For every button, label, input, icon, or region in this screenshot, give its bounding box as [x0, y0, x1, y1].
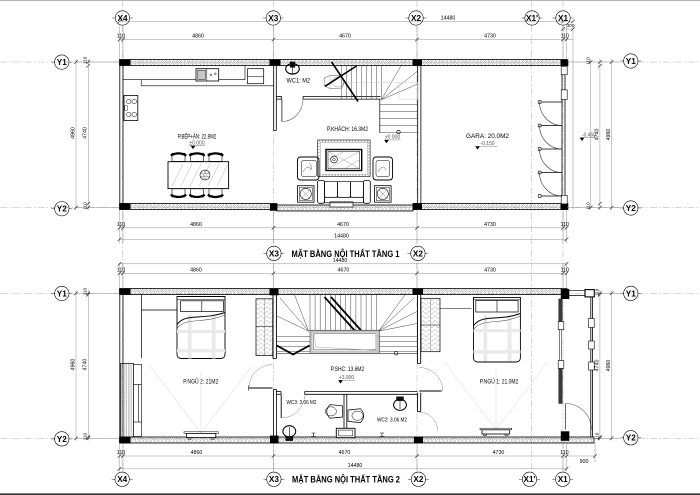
svg-text:WC1: M2: WC1: M2 — [287, 79, 311, 85]
svg-text:4670: 4670 — [338, 268, 350, 274]
svg-text:4960: 4960 — [606, 360, 612, 372]
svg-text:110: 110 — [561, 222, 569, 228]
svg-text:110: 110 — [117, 450, 125, 456]
svg-text:±0.000: ±0.000 — [385, 135, 400, 141]
svg-text:-0.450: -0.450 — [582, 132, 596, 138]
svg-text:4960: 4960 — [71, 127, 77, 139]
svg-text:110: 110 — [561, 268, 569, 274]
svg-text:X3: X3 — [268, 14, 278, 23]
svg-text:X2: X2 — [413, 475, 423, 484]
svg-text:4860: 4860 — [191, 450, 203, 456]
svg-text:Y2: Y2 — [57, 205, 67, 214]
svg-text:Y1: Y1 — [57, 289, 67, 298]
svg-text:GARA: 20.0M2: GARA: 20.0M2 — [466, 133, 510, 140]
svg-text:X2: X2 — [411, 14, 421, 23]
svg-text:X4: X4 — [117, 14, 127, 23]
svg-text:110: 110 — [560, 450, 568, 456]
svg-text:4670: 4670 — [339, 34, 351, 40]
svg-text:110: 110 — [594, 432, 599, 440]
svg-text:110: 110 — [594, 288, 599, 296]
svg-text:4860: 4860 — [190, 222, 202, 228]
svg-text:110: 110 — [83, 202, 88, 210]
svg-text:X4: X4 — [117, 475, 127, 484]
svg-text:4740: 4740 — [83, 359, 89, 371]
svg-text:±0.000: ±0.000 — [189, 140, 204, 146]
svg-text:Y2: Y2 — [626, 434, 636, 443]
svg-text:14480: 14480 — [441, 16, 456, 22]
svg-text:4730: 4730 — [484, 222, 496, 228]
svg-text:4730: 4730 — [484, 268, 496, 274]
svg-text:4670: 4670 — [339, 450, 351, 456]
svg-text:4740: 4740 — [594, 360, 600, 372]
svg-text:110: 110 — [585, 202, 590, 210]
svg-text:Y1: Y1 — [626, 289, 636, 298]
svg-text:110: 110 — [585, 57, 590, 65]
svg-text:110: 110 — [117, 222, 125, 228]
svg-text:4860: 4860 — [190, 268, 202, 274]
svg-text:Y2: Y2 — [626, 204, 636, 213]
svg-text:X1': X1' — [524, 475, 536, 484]
svg-text:Y1: Y1 — [626, 57, 636, 66]
svg-text:WC2: 3.06 M2: WC2: 3.06 M2 — [377, 417, 407, 423]
svg-text:4730: 4730 — [484, 34, 496, 40]
svg-text:300: 300 — [566, 23, 574, 29]
svg-text:X1': X1' — [526, 14, 538, 23]
svg-text:14480: 14480 — [333, 258, 348, 264]
svg-text:4670: 4670 — [337, 222, 349, 228]
svg-text:110: 110 — [117, 34, 125, 40]
svg-text:110: 110 — [83, 287, 88, 295]
svg-text:4860: 4860 — [192, 34, 204, 40]
svg-text:14480: 14480 — [348, 463, 363, 469]
svg-text:110: 110 — [117, 268, 125, 274]
svg-text:110: 110 — [83, 432, 88, 440]
svg-text:MẶT BẰNG NỘI THẤT TẦNG 2: MẶT BẰNG NỘI THẤT TẦNG 2 — [292, 474, 400, 486]
svg-text:Y1: Y1 — [57, 58, 67, 67]
svg-text:-0.150: -0.150 — [480, 141, 494, 147]
svg-text:X3: X3 — [269, 249, 279, 258]
svg-text:4740: 4740 — [83, 127, 89, 139]
svg-text:4730: 4730 — [493, 450, 505, 456]
svg-text:P.SHC: 13.6M2: P.SHC: 13.6M2 — [331, 366, 365, 373]
svg-text:110: 110 — [83, 56, 88, 64]
svg-text:X2: X2 — [413, 249, 423, 258]
svg-text:X1: X1 — [558, 475, 568, 484]
svg-text:Y2: Y2 — [57, 435, 67, 444]
svg-text:4960: 4960 — [71, 359, 77, 371]
svg-text:WC3: 3.06 M2: WC3: 3.06 M2 — [287, 400, 317, 406]
svg-text:900: 900 — [580, 459, 589, 465]
svg-text:P.KHÁCH: 16.3M2: P.KHÁCH: 16.3M2 — [327, 126, 368, 133]
svg-text:P.NGỦ 1: 21.0M2: P.NGỦ 1: 21.0M2 — [480, 379, 519, 386]
svg-text:4960: 4960 — [606, 129, 612, 141]
svg-text:X3: X3 — [269, 475, 279, 484]
svg-text:110: 110 — [561, 34, 569, 40]
svg-text:X1: X1 — [558, 14, 568, 23]
svg-text:14480: 14480 — [334, 234, 349, 240]
svg-text:+3.900: +3.900 — [339, 375, 355, 381]
